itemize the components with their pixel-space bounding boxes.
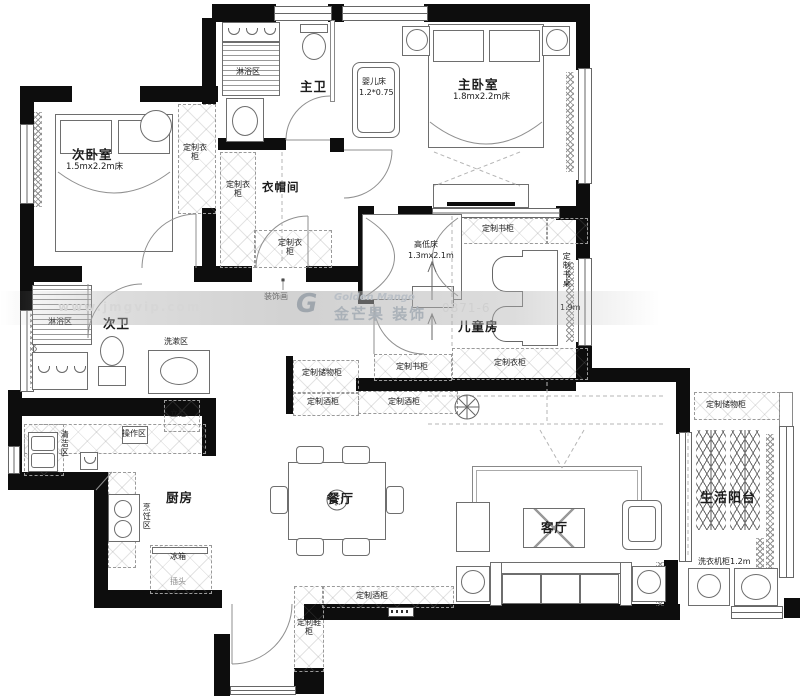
bedside-stool xyxy=(140,110,172,142)
dining-chair xyxy=(342,538,370,556)
balcony-sliding-door xyxy=(679,432,692,562)
sofa-back xyxy=(496,562,626,574)
wall-segment xyxy=(202,18,216,104)
cabinet-label-wardrobe: 定制衣柜 xyxy=(494,358,526,367)
fridge-label: 冰箱 xyxy=(170,552,186,561)
dining-chair xyxy=(296,446,324,464)
room-label-bedroom2: 次卧室 xyxy=(72,148,113,162)
wardrobe-cabinet-cloakroom-left xyxy=(220,152,256,268)
cabinet-label-wine: 定制酒柜 xyxy=(356,591,388,600)
sofa-seat xyxy=(502,574,541,604)
wall-segment xyxy=(784,598,800,618)
partition-wall xyxy=(330,20,335,102)
washer-cabinet-label: 洗衣机柜1.2m xyxy=(698,557,751,566)
cabinet-label-wardrobe: 定制衣柜 xyxy=(278,238,302,256)
cabinet-label-bookcase: 定制书柜 xyxy=(396,362,428,371)
wall-segment xyxy=(576,18,590,70)
dining-chair xyxy=(270,486,288,514)
plug-label: 插头 xyxy=(170,577,186,586)
window xyxy=(578,68,592,184)
zone-label-cooking: 烹饪区 xyxy=(142,503,151,543)
plant xyxy=(696,430,726,530)
cabinet-label-wine: 定制酒柜 xyxy=(307,397,339,406)
desk-chair xyxy=(492,256,523,292)
cabinet-label-wine: 定制酒柜 xyxy=(388,397,420,406)
lamp-icon xyxy=(461,570,485,594)
watermark-brand-cn: 金芒果 装饰 xyxy=(334,303,426,324)
room-label-master-bedroom: 主卧室 xyxy=(458,78,499,92)
toilet-tank xyxy=(98,366,126,386)
window xyxy=(731,606,783,619)
floor-plan: www.jmgvip.com G Golden Mango 金芒果 装饰 087… xyxy=(0,0,800,696)
armchair-cushion xyxy=(628,506,656,542)
lamp-icon xyxy=(546,29,568,51)
wall-segment xyxy=(94,472,108,594)
zone-label-washing: 洗漱区 xyxy=(164,337,188,346)
wall-segment xyxy=(330,138,344,152)
sofa-seat xyxy=(580,574,619,604)
room-label-balcony: 生活阳台 xyxy=(700,492,756,507)
wall-hatch xyxy=(34,112,42,207)
zone-label-prep: 操作区 xyxy=(122,429,146,438)
sink-basin xyxy=(160,357,198,385)
window xyxy=(274,6,332,21)
wall-segment xyxy=(212,4,276,22)
watermark-brand-en: Golden Mango xyxy=(334,292,415,303)
zone-label-shower-master: 淋浴区 xyxy=(236,67,260,76)
wall-segment xyxy=(20,200,34,270)
watermark-phone: 0871-6 xyxy=(442,301,491,315)
wall-segment xyxy=(20,86,34,126)
crib-label: 婴儿床 xyxy=(362,77,386,86)
bunk-bed-label: 高低床 xyxy=(414,240,438,249)
cabinet-label-wardrobe: 定制衣柜 xyxy=(226,180,250,198)
entry-threshold xyxy=(230,686,296,695)
wall-segment xyxy=(214,634,230,696)
watermark-band: www.jmgvip.com G Golden Mango 金芒果 装饰 087… xyxy=(0,291,660,325)
wall-segment xyxy=(424,4,590,22)
pillow xyxy=(489,30,540,62)
bed-size-master: 1.8mx2.2m床 xyxy=(453,93,510,103)
bookcase-kids-top-2 xyxy=(546,218,588,244)
wall-segment xyxy=(676,368,690,434)
crib-size: 1.2*0.75 xyxy=(359,88,394,97)
wall-segment xyxy=(306,266,360,282)
sink-bowl xyxy=(31,453,55,468)
sink-bowl xyxy=(31,436,55,451)
wall-segment xyxy=(20,266,82,282)
toilet-bowl xyxy=(302,33,326,60)
cabinet-label-shoe: 定制鞋柜 xyxy=(297,618,321,636)
dining-chair xyxy=(296,538,324,556)
cabinet-label-storage: 定制储物柜 xyxy=(302,368,342,377)
lamp-icon xyxy=(406,29,428,51)
bed-size-bedroom2: 1.5mx2.2m床 xyxy=(66,163,123,173)
burner-icon xyxy=(114,500,132,518)
dining-chair xyxy=(342,446,370,464)
window xyxy=(779,426,794,578)
pillow xyxy=(433,30,484,62)
dining-chair xyxy=(386,486,404,514)
wall-tag-chip xyxy=(388,607,414,617)
cabinet-label-bookcase: 定制书柜 xyxy=(482,224,514,233)
toilet-bowl xyxy=(100,336,124,366)
tv-screen xyxy=(447,202,515,206)
room-label-living: 客厅 xyxy=(541,521,568,535)
side-cabinet xyxy=(456,502,490,552)
room-label-kitchen: 厨房 xyxy=(166,491,193,505)
wine-cabinet-entry xyxy=(322,586,454,608)
wall-segment xyxy=(286,356,293,414)
cabinet-label-storage: 定制储物柜 xyxy=(706,400,746,409)
window xyxy=(342,6,428,21)
wall-segment xyxy=(576,368,688,382)
cabinet-label-tall: 立柜 xyxy=(170,409,186,418)
wall-hatch xyxy=(566,72,574,172)
wall-segment xyxy=(202,208,216,270)
bunk-bed-size: 1.3mx2.1m xyxy=(408,251,454,260)
burner-icon xyxy=(114,520,132,538)
sofa-arm xyxy=(490,562,502,606)
wall-hatch xyxy=(766,434,774,574)
sink-basin xyxy=(232,106,258,136)
partition-wall xyxy=(779,392,793,430)
plant xyxy=(730,430,760,530)
room-label-master-bath: 主卫 xyxy=(300,80,327,94)
brand-logo-icon: G xyxy=(296,289,317,319)
sofa-seat xyxy=(541,574,580,604)
washer-door xyxy=(697,574,721,598)
sink-basin xyxy=(741,574,771,600)
lamp-icon xyxy=(637,570,661,594)
wall-segment xyxy=(664,560,678,606)
cabinet-label-wardrobe: 定制衣柜 xyxy=(183,143,207,161)
window xyxy=(20,124,34,204)
toilet-tank xyxy=(300,24,328,33)
window xyxy=(8,446,20,474)
watermark-url: www.jmgvip.com xyxy=(58,300,201,314)
room-label-cloakroom: 衣帽间 xyxy=(262,181,300,194)
sofa-arm xyxy=(620,562,632,606)
room-label-dining: 餐厅 xyxy=(327,492,354,506)
wall-segment xyxy=(214,266,252,282)
zone-label-cleaning: 清洁区 xyxy=(60,430,69,470)
